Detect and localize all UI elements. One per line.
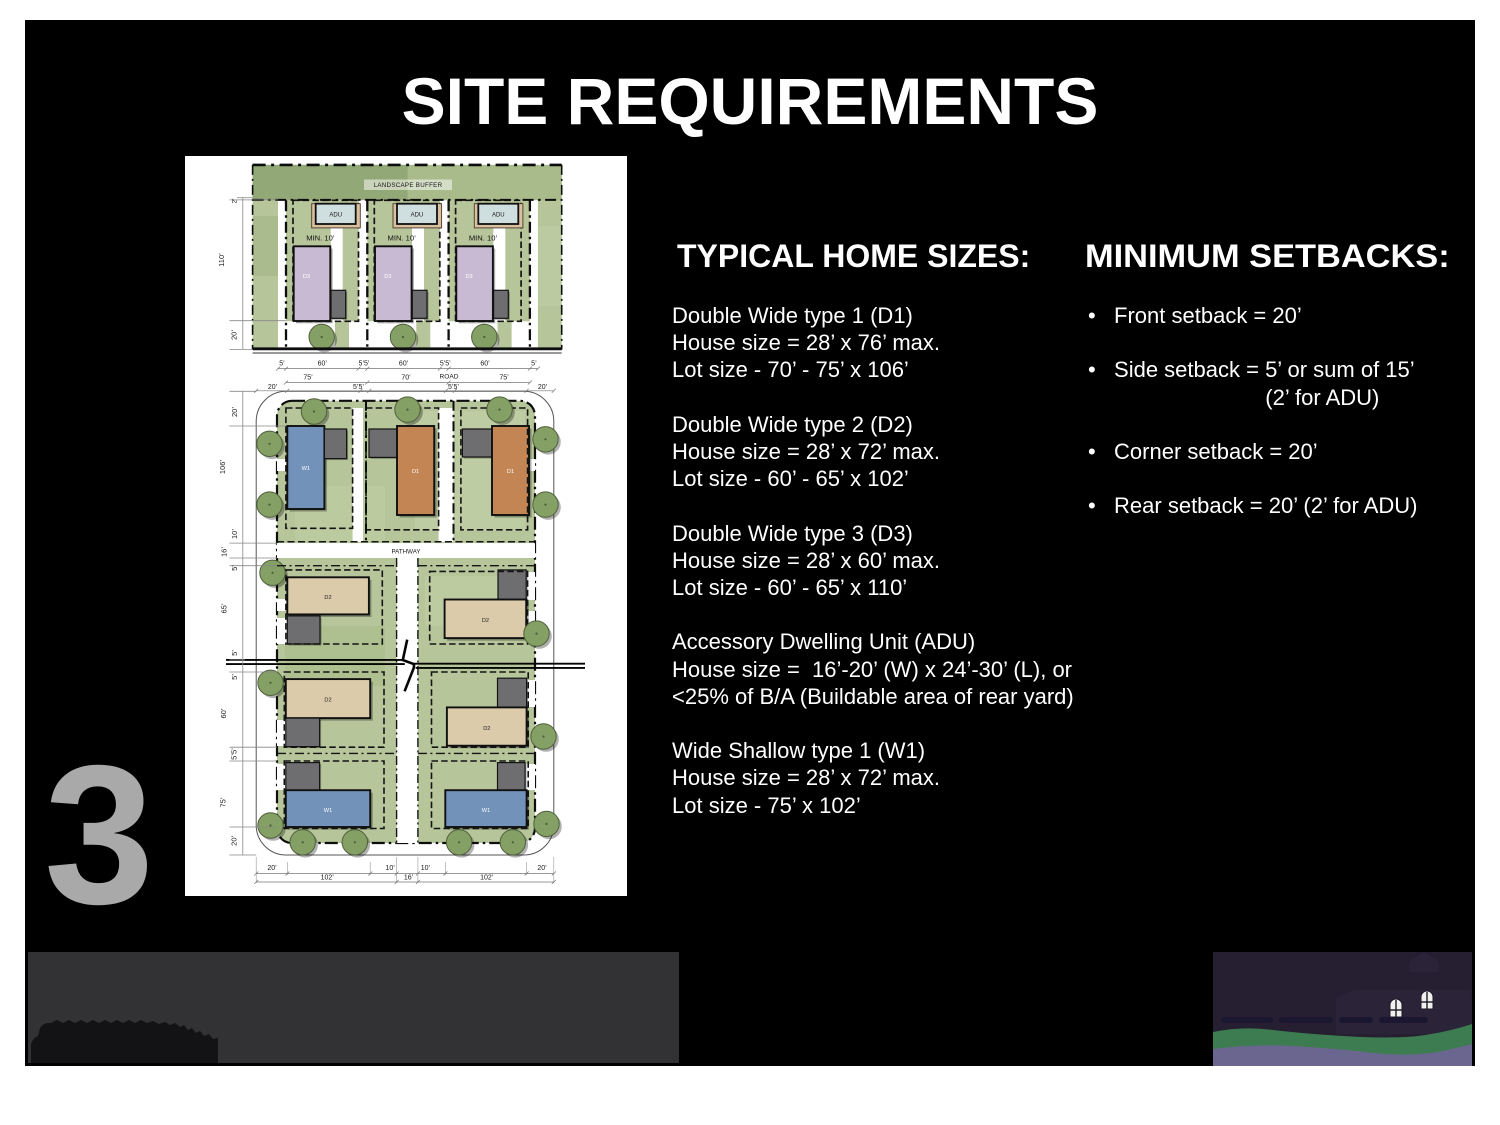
svg-text:D1: D1 — [412, 469, 419, 475]
svg-text:ADU: ADU — [411, 213, 424, 219]
svg-text:W1: W1 — [302, 466, 310, 472]
svg-text:D2: D2 — [483, 726, 490, 732]
svg-text:5’5’: 5’5’ — [448, 384, 459, 391]
svg-text:60’: 60’ — [399, 361, 409, 368]
svg-text:5’5’: 5’5’ — [353, 384, 364, 391]
svg-text:60’: 60’ — [318, 361, 328, 368]
svg-text:5’: 5’ — [230, 650, 239, 656]
svg-text:W1: W1 — [324, 808, 332, 814]
svg-text:102’: 102’ — [480, 875, 494, 882]
svg-text:D3: D3 — [384, 274, 391, 280]
svg-text:D3: D3 — [303, 274, 310, 280]
svg-text:D2: D2 — [482, 618, 489, 624]
svg-text:MIN. 10’: MIN. 10’ — [388, 234, 417, 243]
svg-text:D2: D2 — [324, 698, 331, 704]
svg-text:20’: 20’ — [267, 865, 277, 872]
svg-text:5’: 5’ — [531, 361, 537, 368]
svg-text:70’: 70’ — [401, 375, 411, 382]
svg-text:16’: 16’ — [404, 875, 414, 882]
svg-text:5’: 5’ — [230, 674, 239, 680]
svg-text:20’: 20’ — [230, 330, 239, 340]
svg-text:ADU: ADU — [492, 213, 505, 219]
svg-text:10’: 10’ — [230, 529, 239, 539]
svg-text:D3: D3 — [466, 274, 473, 280]
svg-text:5’: 5’ — [279, 361, 285, 368]
svg-text:60’: 60’ — [480, 361, 490, 368]
svg-text:LANDSCAPE BUFFER: LANDSCAPE BUFFER — [374, 182, 443, 189]
svg-text:20’: 20’ — [230, 407, 239, 417]
svg-text:102’: 102’ — [321, 875, 335, 882]
svg-text:5’5’: 5’5’ — [230, 748, 239, 760]
svg-text:106’: 106’ — [218, 460, 227, 475]
svg-text:5’5’: 5’5’ — [440, 361, 451, 368]
svg-text:16’: 16’ — [220, 547, 229, 557]
svg-text:5’5’: 5’5’ — [359, 361, 370, 368]
svg-text:20’: 20’ — [268, 384, 278, 391]
svg-text:10’: 10’ — [421, 865, 431, 872]
svg-text:75’: 75’ — [218, 797, 227, 807]
svg-text:5’: 5’ — [230, 565, 239, 571]
svg-text:65’: 65’ — [220, 603, 229, 613]
svg-text:75’: 75’ — [499, 375, 509, 382]
svg-text:D2: D2 — [324, 595, 331, 601]
svg-text:20’: 20’ — [230, 835, 239, 845]
svg-text:20’: 20’ — [538, 384, 548, 391]
svg-text:MIN. 10’: MIN. 10’ — [469, 234, 498, 243]
svg-text:ROAD: ROAD — [439, 374, 458, 381]
svg-text:110’: 110’ — [217, 253, 226, 267]
svg-text:MIN. 10’: MIN. 10’ — [306, 234, 335, 243]
svg-text:75’: 75’ — [303, 375, 313, 382]
svg-text:ADU: ADU — [329, 213, 342, 219]
svg-text:20’: 20’ — [537, 865, 547, 872]
svg-text:PATHWAY: PATHWAY — [392, 549, 421, 556]
svg-text:W1: W1 — [482, 808, 490, 814]
svg-text:D1: D1 — [507, 469, 514, 475]
svg-text:10’: 10’ — [385, 865, 395, 872]
svg-text:60’: 60’ — [219, 708, 228, 718]
svg-text:2’: 2’ — [232, 198, 239, 204]
